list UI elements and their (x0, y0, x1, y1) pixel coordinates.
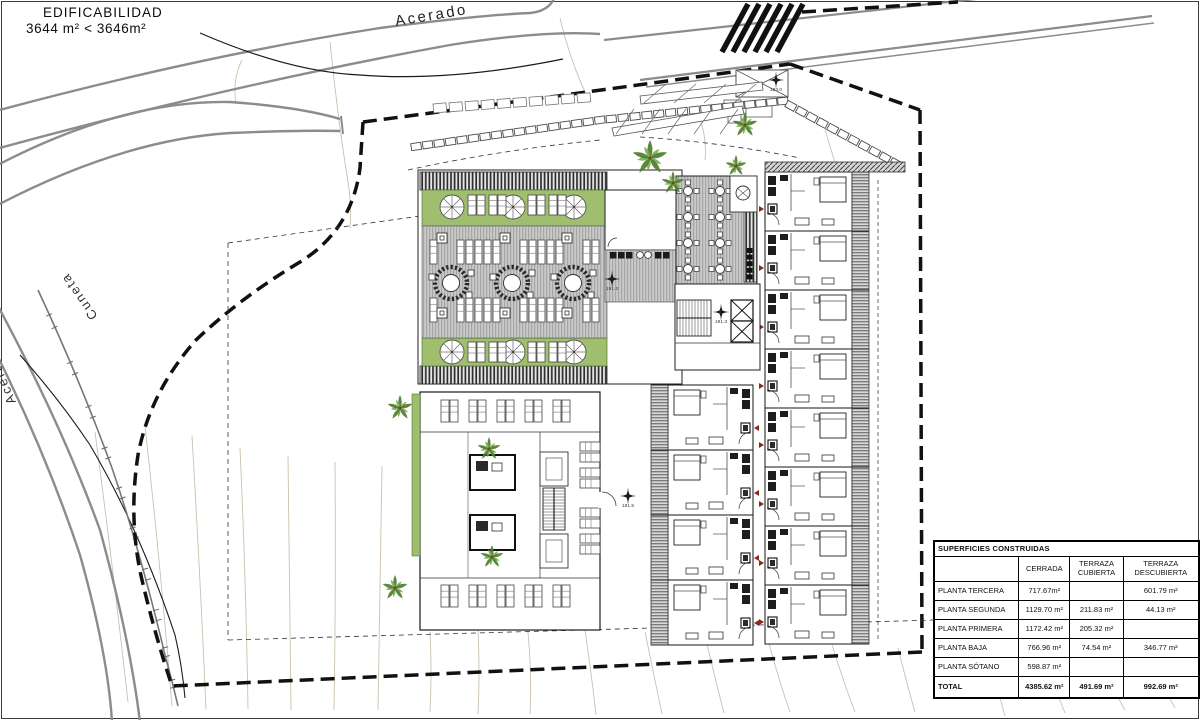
surfaces-table-grid: SUPERFICIES CONSTRUIDASCERRADATERRAZA CU… (933, 540, 1200, 699)
palm-tree-icon (725, 155, 747, 176)
floor-label: PLANTA BAJA (934, 639, 1019, 658)
palm-tree-icon (632, 140, 668, 174)
total-terraza-cubierta-value: 491.69 m² (1070, 677, 1123, 699)
total-cerrada-value: 4385.62 m² (1019, 677, 1070, 699)
hotel-room (668, 515, 753, 580)
road-label-acerado-left: Acerado (0, 343, 19, 406)
site-plan-canvas: AceradoCunetaAcerado183.0191.3191.3181.5… (0, 0, 1200, 720)
edificability-values: 3644 m² < 3646m² (26, 21, 163, 36)
floor-label: PLANTA PRIMERA (934, 620, 1019, 639)
terraza-cubierta-value (1070, 658, 1123, 677)
surfaces-column-header (934, 557, 1019, 582)
surfaces-row: PLANTA PRIMERA 1172.42 m² 205.32 m² (934, 620, 1199, 639)
road-label-cuneta: Cuneta (57, 270, 100, 323)
left-room-wing (668, 385, 759, 645)
edificability-title: EDIFICABILIDAD (26, 5, 163, 20)
terraza-descubierta-value (1123, 620, 1199, 639)
cerrada-value: 1172.42 m² (1019, 620, 1070, 639)
edificability-note: EDIFICABILIDAD 3644 m² < 3646m² (26, 5, 163, 36)
surfaces-row: PLANTA TERCERA 717.67m² 601.79 m² (934, 582, 1199, 601)
hotel-room (765, 585, 852, 644)
surfaces-row: PLANTA SEGUNDA 1129.70 m² 211.83 m² 44.1… (934, 601, 1199, 620)
terraza-cubierta-value: 211.83 m² (1070, 601, 1123, 620)
hotel-room (765, 231, 852, 290)
parasol-icon (440, 195, 464, 219)
cerrada-value: 766.96 m² (1019, 639, 1070, 658)
palm-tree-icon (387, 395, 413, 420)
door-arrow-icon (759, 206, 764, 212)
terraza-cubierta-value (1070, 582, 1123, 601)
surfaces-table: SUPERFICIES CONSTRUIDASCERRADATERRAZA CU… (933, 540, 1200, 699)
elevator-icon (731, 321, 753, 342)
right-room-wing (759, 172, 852, 644)
elevation-value: 181.5 (622, 503, 634, 509)
palm-tree-icon (382, 575, 408, 600)
door-arrow-icon (759, 442, 764, 448)
door-arrow-icon (759, 265, 764, 271)
door-arrow-icon (754, 490, 759, 496)
cerrada-value: 717.67m² (1019, 582, 1070, 601)
door-arrow-icon (759, 501, 764, 507)
total-terraza-descubierta-value: 992.69 m² (1123, 677, 1199, 699)
terraza-descubierta-value (1123, 658, 1199, 677)
terraza-descubierta-value: 601.79 m² (1123, 582, 1199, 601)
terraza-cubierta-value: 205.32 m² (1070, 620, 1123, 639)
hotel-room (765, 290, 852, 349)
door-arrow-icon (754, 555, 759, 561)
cerrada-value: 598.87 m² (1019, 658, 1070, 677)
hotel-room (765, 408, 852, 467)
door-arrow-icon (759, 560, 764, 566)
terraza-descubierta-value: 346.77 m² (1123, 639, 1199, 658)
hotel-room (765, 467, 852, 526)
floor-label: PLANTA SÓTANO (934, 658, 1019, 677)
elevator-icon (731, 300, 753, 321)
elevation-marker-pool-terrace: 181.5 (621, 489, 636, 510)
terraza-descubierta-value: 44.13 m² (1123, 601, 1199, 620)
hotel-room (668, 450, 753, 515)
elevation-value: 191.3 (606, 286, 618, 292)
stairs-icon (677, 300, 711, 336)
cerrada-value: 1129.70 m² (1019, 601, 1070, 620)
stairs-icon (543, 488, 565, 530)
door-arrow-icon (759, 619, 764, 625)
surfaces-column-header: TERRAZA CUBIERTA (1070, 557, 1123, 582)
surfaces-row: PLANTA BAJA 766.96 m² 74.54 m² 346.77 m² (934, 639, 1199, 658)
road-label-acerado-top: Acerado (394, 1, 469, 30)
elevation-value: 191.3 (715, 319, 727, 325)
elevation-value: 183.0 (770, 87, 782, 93)
surfaces-column-header: CERRADA (1019, 557, 1070, 582)
surfaces-row: PLANTA SÓTANO 598.87 m² (934, 658, 1199, 677)
surfaces-table-title: SUPERFICIES CONSTRUIDAS (934, 541, 1199, 557)
hotel-room (668, 580, 753, 645)
surfaces-total-row: TOTAL 4385.62 m² 491.69 m² 992.69 m² (934, 677, 1199, 699)
hotel-room (668, 385, 753, 450)
deck-furniture-row (610, 252, 670, 259)
spa-terrace (412, 392, 616, 630)
hotel-room (765, 349, 852, 408)
parasol-icon (440, 340, 464, 364)
total-label: TOTAL (934, 677, 1019, 699)
hotel-room (765, 526, 852, 585)
terraza-cubierta-value: 74.54 m² (1070, 639, 1123, 658)
surfaces-column-header: TERRAZA DESCUBIERTA (1123, 557, 1199, 582)
floor-label: PLANTA TERCERA (934, 582, 1019, 601)
floor-label: PLANTA SEGUNDA (934, 601, 1019, 620)
door-arrow-icon (759, 383, 764, 389)
hotel-room (765, 172, 852, 231)
door-arrow-icon (754, 425, 759, 431)
surfaces-header-row: CERRADATERRAZA CUBIERTATERRAZA DESCUBIER… (934, 557, 1199, 582)
